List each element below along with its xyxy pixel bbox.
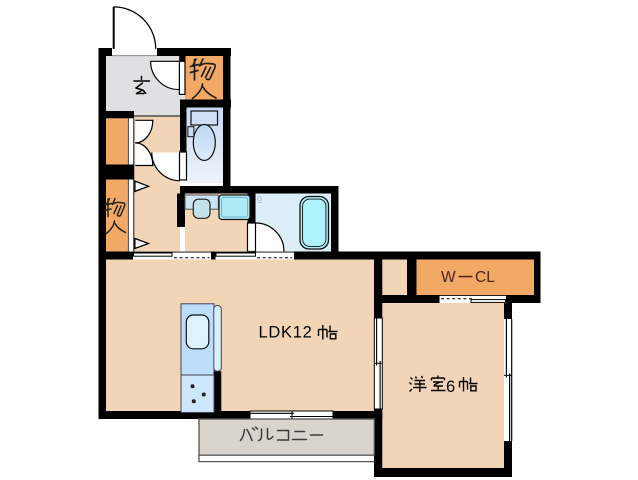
svg-text:CL: CL <box>475 269 495 286</box>
svg-text:LDK12: LDK12 <box>259 324 313 342</box>
svg-text:W: W <box>441 269 456 286</box>
svg-text:6: 6 <box>446 378 455 396</box>
